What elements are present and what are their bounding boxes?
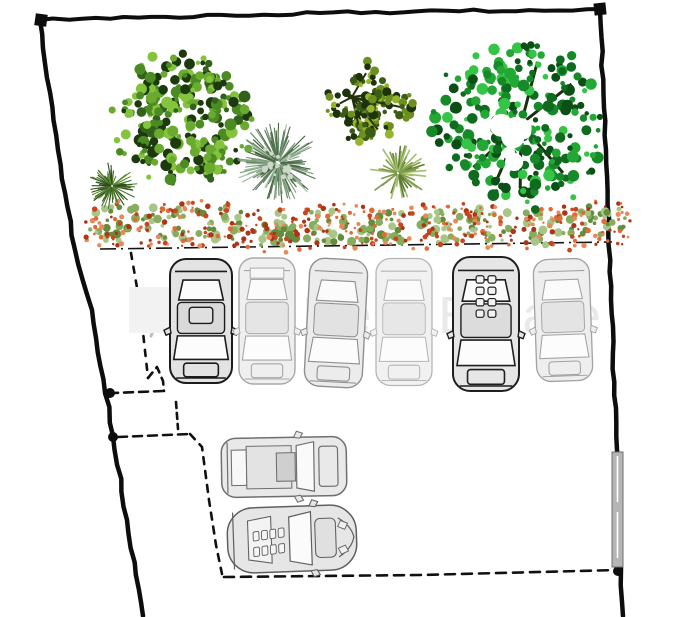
- dark-grass-tuft: [91, 163, 137, 209]
- car-top-view-sedan: [298, 257, 375, 388]
- car-top-view-suv-sunroof: [447, 257, 525, 391]
- yucca-palm: [371, 146, 426, 198]
- car-top-view-sports-side: [226, 498, 358, 579]
- car-top-view-sedan-light: [527, 258, 599, 382]
- parked-cars: [164, 257, 599, 580]
- gate-bar: [612, 452, 623, 567]
- car-top-view-suv-dark: [164, 259, 238, 383]
- site-plan-svg: City Real Estate: [0, 0, 691, 617]
- car-top-view-sedan-light: [370, 259, 438, 386]
- large-green-tree: [426, 41, 603, 214]
- site-plan: City Real Estate: [0, 0, 691, 617]
- vegetation: [84, 41, 632, 254]
- open-dark-bush: [324, 57, 416, 146]
- large-dark-bush: [109, 50, 255, 186]
- car-top-view-wagon-light: [233, 258, 301, 384]
- fountain-grass: [238, 123, 315, 202]
- car-top-view-wagon-side: [221, 430, 347, 503]
